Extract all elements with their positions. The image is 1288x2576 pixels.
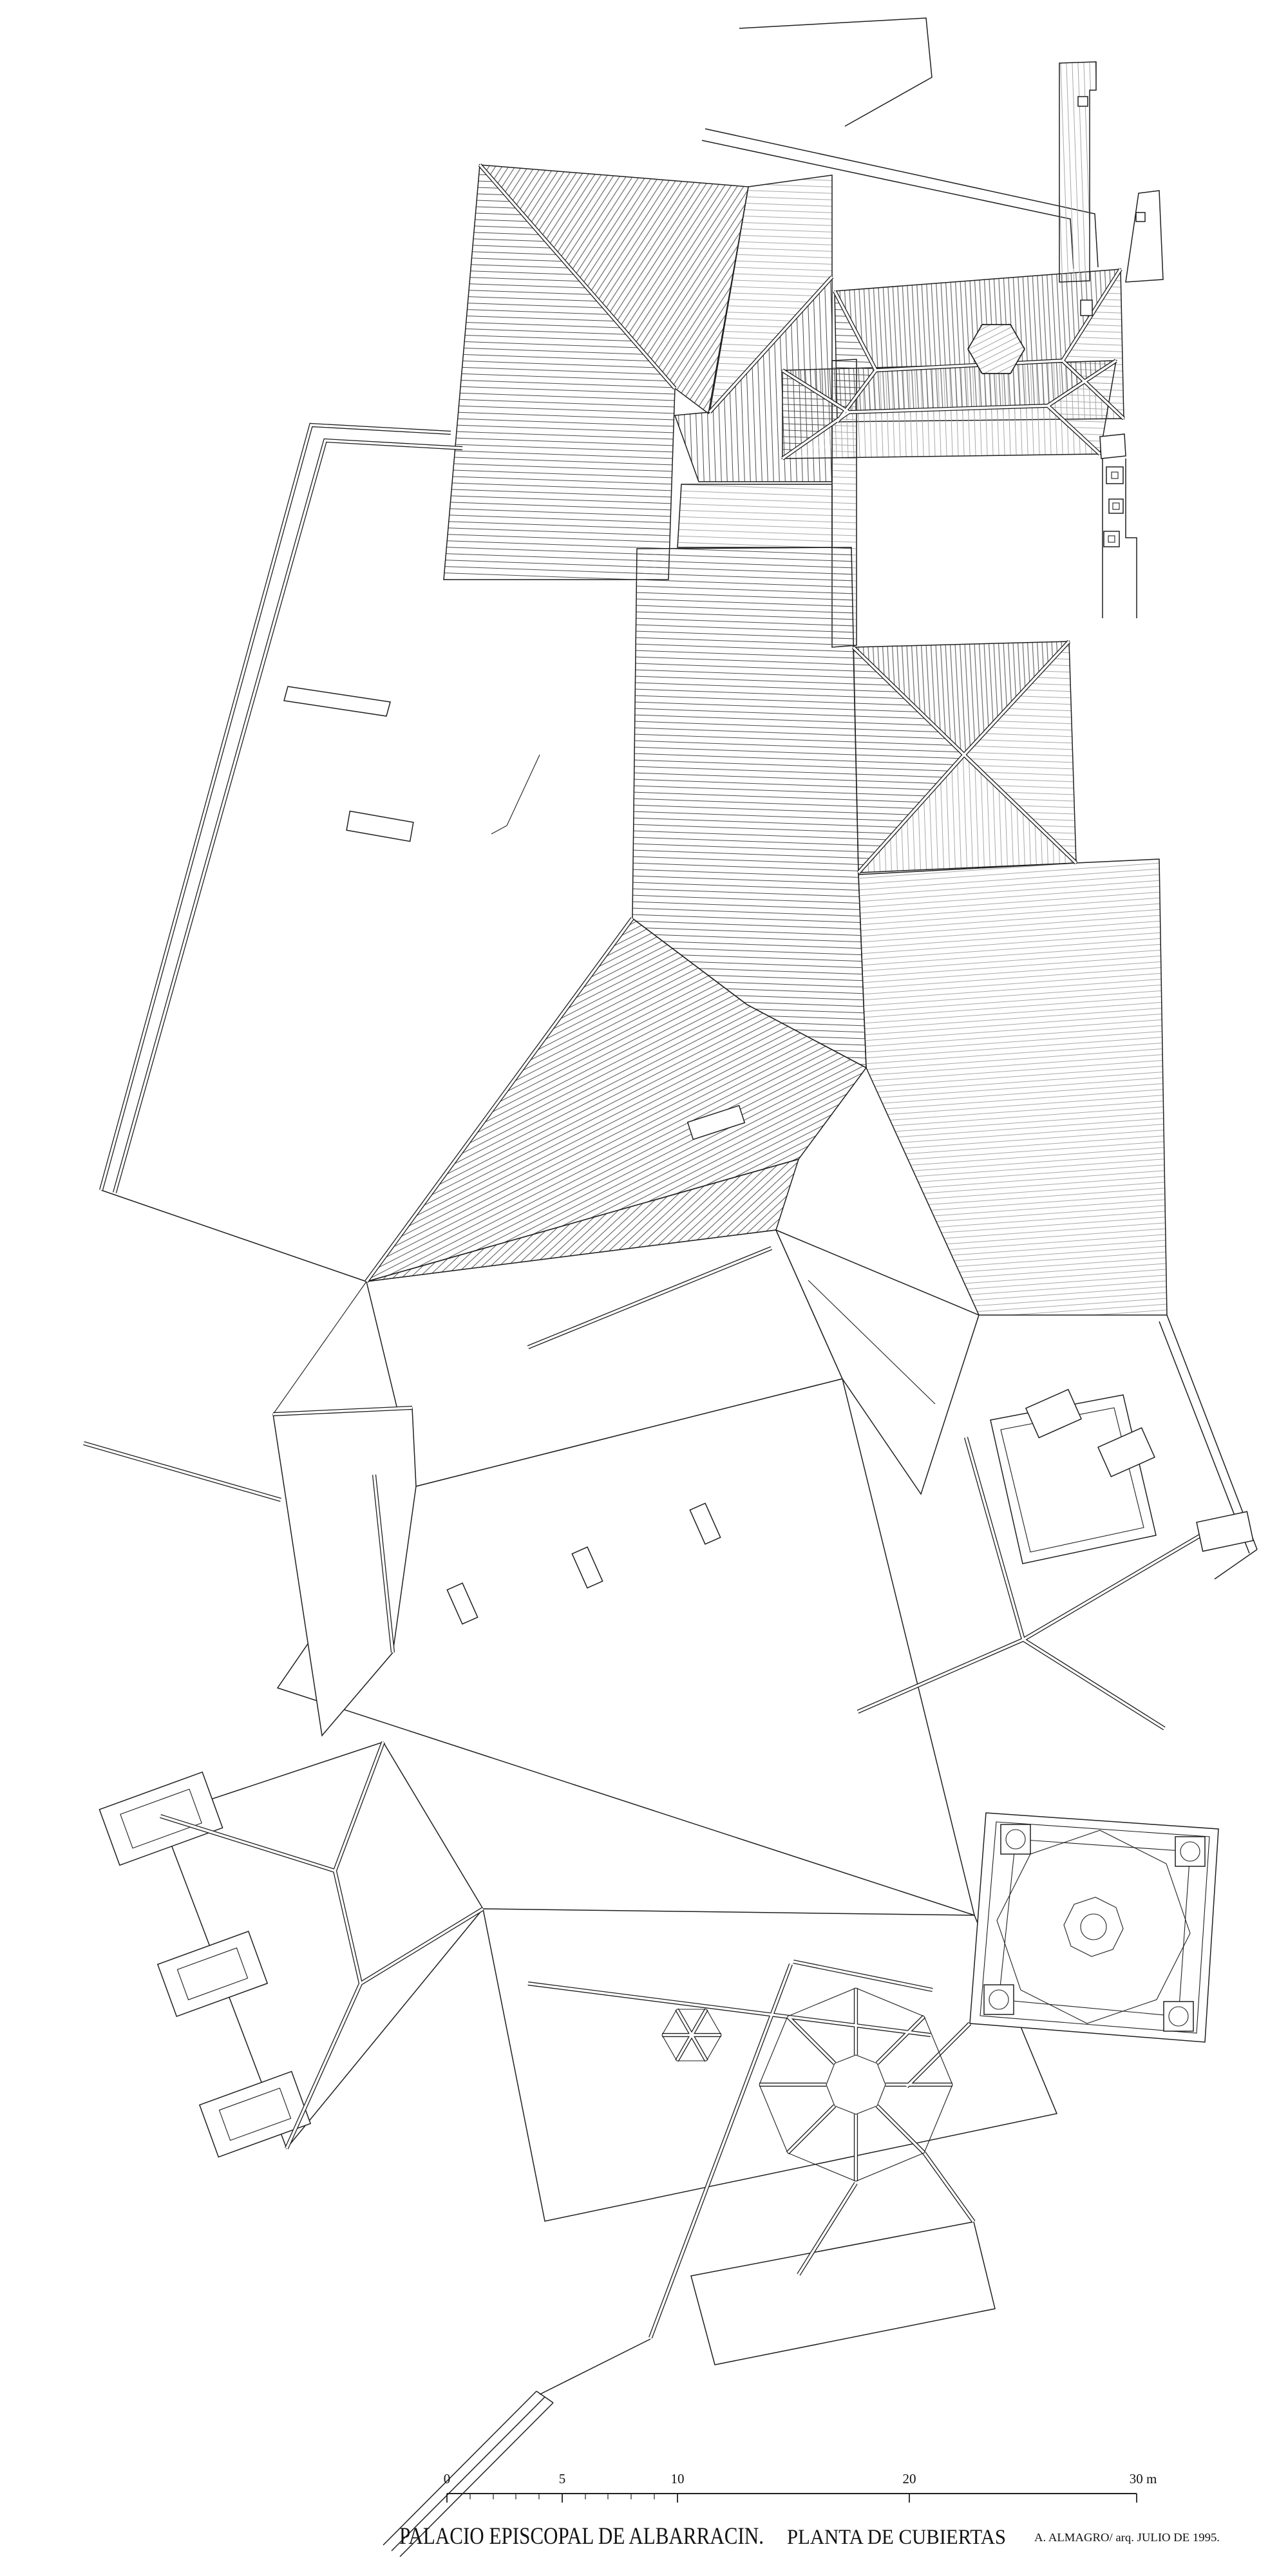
scale-label-20: 20 [903,2471,916,2486]
sacristy-roof [691,2222,995,2365]
palace-roof-light-band [677,484,832,547]
small-chimney [1081,300,1092,316]
drawing-sheet: 0 5 10 20 30 m PALACIO EPISCOPAL DE ALBA… [0,0,1288,2576]
scale-label-30: 30 m [1130,2471,1157,2486]
chimney-ladder [1103,459,1137,618]
sheet-title: PALACIO EPISCOPAL DE ALBARRACIN. [399,2523,764,2550]
wall-window [1078,97,1088,106]
cloister-tower-roof [970,1813,1218,2042]
wall-pier [1126,191,1163,282]
roof-plan-drawing: 0 5 10 20 30 m PALACIO EPISCOPAL DE ALBA… [0,0,1288,2576]
wall-pier-window [1136,213,1145,222]
courtyard-structure [346,811,413,842]
scale-label-0: 0 [444,2471,451,2486]
sheet-subtitle: PLANTA DE CUBIERTAS [787,2526,1006,2549]
scale-label-10: 10 [671,2471,685,2486]
lower-nave-roof [483,1909,1057,2221]
courtyard-wall-stub [284,687,390,716]
scale-bar: 0 5 10 20 30 m [444,2471,1157,2503]
title-block: PALACIO EPISCOPAL DE ALBARRACIN. PLANTA … [399,2523,1220,2550]
wall-strip [1059,62,1096,282]
scale-label-5: 5 [559,2471,566,2486]
palace-roof-east-light [858,859,1167,1315]
band2-east-tab [1100,434,1126,459]
sheet-credit: A. ALMAGRO/ arq. JULIO DE 1995. [1034,2531,1220,2544]
